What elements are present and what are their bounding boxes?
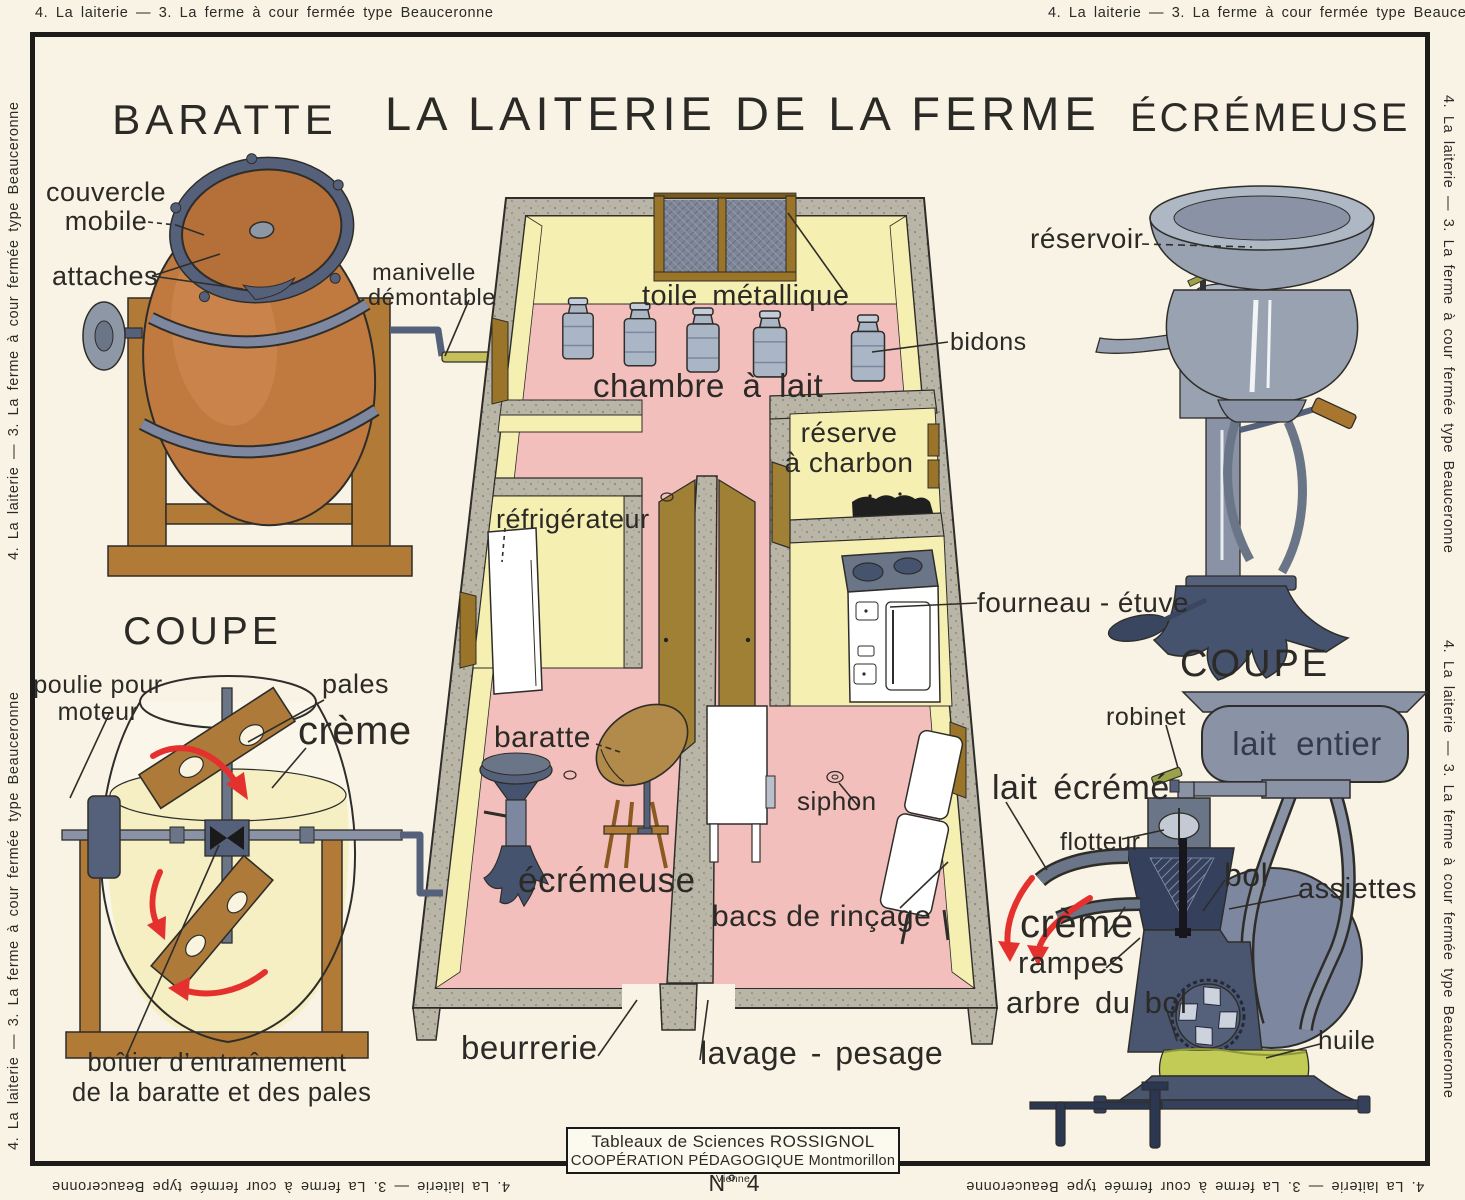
label-bacs-de-rincage: bacs de rinçage: [712, 901, 931, 933]
border-text-right-lower: 4. La laiterie — 3. La ferme à cour ferm…: [1440, 640, 1456, 1099]
illustrations: [0, 0, 1465, 1200]
credit-dept: Vienne: [716, 1173, 750, 1185]
label-beurrerie: beurrerie: [461, 1030, 598, 1066]
credit-box: Tableaux de Sciences ROSSIGNOL COOPÉRATI…: [566, 1127, 900, 1174]
label-bol: bol: [1224, 858, 1268, 893]
border-text-top-left: 4. La laiterie — 3. La ferme à cour ferm…: [35, 5, 494, 21]
credit-place: Montmorillon: [809, 1153, 896, 1169]
label-manivelle-demontable: manivelle démontable: [368, 260, 480, 311]
label-chambre-a-lait: chambre à lait: [593, 368, 823, 404]
label-creme-coupe: crème: [1020, 903, 1134, 946]
border-text-bottom-left: 4. La laiterie — 3. La ferme à cour ferm…: [90, 1178, 510, 1194]
border-text-top-right: 4. La laiterie — 3. La ferme à cour ferm…: [1048, 5, 1465, 21]
coupe-ecremeuse-title: COUPE: [1180, 643, 1330, 686]
border-text-left-upper: 4. La laiterie — 3. La ferme à cour ferm…: [6, 101, 22, 560]
border-text-left-lower: 4. La laiterie — 3. La ferme à cour ferm…: [6, 691, 22, 1150]
label-poulie-pour-moteur: poulie pour moteur: [28, 672, 168, 726]
border-text-bottom-right: 4. La laiterie — 3. La ferme à cour ferm…: [960, 1178, 1430, 1194]
label-couvercle-mobile: couvercle mobile: [40, 178, 172, 236]
label-reserve-a-charbon: réserve à charbon: [783, 418, 915, 478]
label-bidons: bidons: [950, 329, 1027, 356]
label-attaches: attaches: [52, 262, 158, 291]
ecremeuse-title: ÉCRÉMEUSE: [1130, 96, 1410, 141]
label-rampes: rampes: [1018, 946, 1124, 979]
label-siphon: siphon: [797, 787, 877, 815]
credit-line-1: Tableaux de Sciences ROSSIGNOL: [568, 1132, 898, 1152]
label-assiettes: assiettes: [1298, 874, 1417, 905]
label-lavage-pesage: lavage - pesage: [700, 1036, 943, 1071]
label-toile-metallique: toile métallique: [642, 281, 849, 312]
border-text-right-upper: 4. La laiterie — 3. La ferme à cour ferm…: [1440, 95, 1456, 554]
label-fourneau-etuve: fourneau - étuve: [977, 588, 1189, 618]
label-refrigerateur: réfrigérateur: [496, 505, 650, 534]
label-boitier: boîtier d’entraînement de la baratte et …: [72, 1048, 362, 1108]
label-plan-baratte: baratte: [494, 722, 591, 754]
page-title: LA LAITERIE DE LA FERME: [385, 86, 1085, 141]
poster: { "border_text": "4. La laiterie — 3. La…: [0, 0, 1465, 1200]
credit-line-2: COOPÉRATION PÉDAGOGIQUE Montmorillon Vie…: [568, 1152, 898, 1186]
label-reservoir: réservoir: [1030, 224, 1143, 254]
label-lait-entier: lait entier: [1222, 726, 1392, 762]
label-robinet: robinet: [1106, 704, 1186, 731]
label-plan-ecremeuse: écrémeuse: [518, 862, 696, 900]
label-arbre-du-bol: arbre du bol: [1006, 986, 1187, 1019]
baratte-title: BARATTE: [110, 96, 340, 144]
label-pales: pales: [322, 670, 389, 699]
coupe-baratte-title: COUPE: [120, 610, 285, 654]
label-flotteur: flotteur: [1060, 829, 1140, 856]
label-huile: huile: [1318, 1026, 1375, 1054]
label-creme-baratte: crème: [298, 710, 412, 753]
label-lait-ecreme: lait écrémé: [992, 770, 1170, 807]
